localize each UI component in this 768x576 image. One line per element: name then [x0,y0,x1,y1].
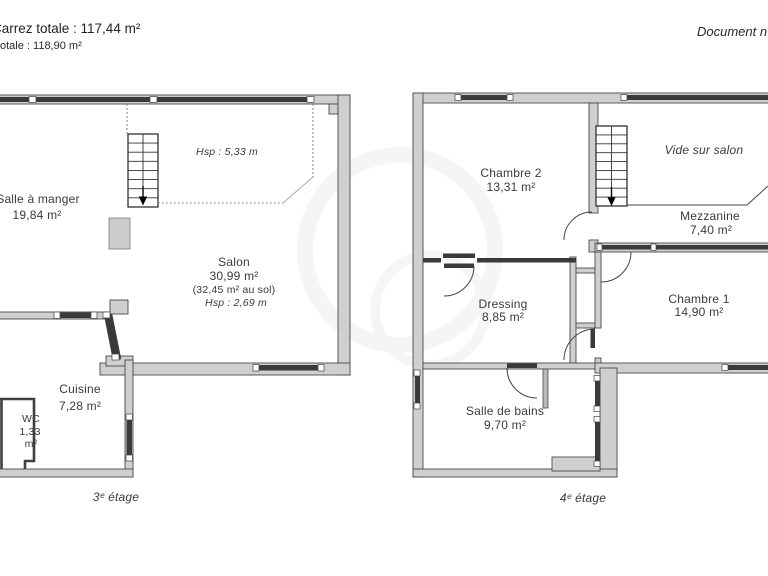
room-label-chambre2: Chambre 2 [401,167,621,180]
room-label-salle-de-bains: Salle de bains [395,405,615,418]
bathroom-stub-wall [543,369,548,408]
surface-carrez-total: Carrez totale : 117,44 m² [0,21,140,36]
slanted-window [104,314,121,360]
hsp-annotation-salon: Hsp : 2,69 m [126,297,346,310]
chambre2-door-swing-icon [564,212,592,240]
room-label-salon: Salon [124,256,344,269]
room-area-wc-unit: m² [0,438,141,451]
surface-total: otale : 118,90 m² [0,40,82,52]
mezzanine-edge-line [627,186,768,205]
room-area-salle-a-manger: 19,84 m² [0,209,147,222]
room-floor-area-salon: (32,45 m² au sol) [124,284,344,297]
room-area-chambre2: 13,31 m² [401,181,621,194]
bathroom-door-swing-icon [507,368,537,398]
column [109,218,130,249]
room-area-dressing: 8,85 m² [393,311,613,324]
room-label-mezzanine: Mezzanine [600,210,768,223]
hsp-annotation-mezzanine: Hsp : 5,33 m [117,146,337,159]
room-label-cuisine: Cuisine [0,383,190,396]
mezzanine-staircase-icon [596,126,627,206]
floorplan-page: Carrez totale : 117,44 m² otale : 118,90… [0,0,768,576]
chambre1-door-leaf [591,329,596,348]
floor3-label: 3ᵉ étage [6,491,226,504]
document-note: Document n [697,24,767,39]
room-area-cuisine: 7,28 m² [0,400,190,413]
chambre1-top-door-swing-icon [601,252,631,282]
chambre1-side-door-swing-icon [564,329,595,360]
room-area-chambre1: 14,90 m² [589,306,768,319]
floor4-label: 4ᵉ étage [473,492,693,505]
vide-sur-salon-annotation: Vide sur salon [594,144,768,157]
room-label-salle-a-manger: Salle à manger [0,193,148,206]
room-area-salle-de-bains: 9,70 m² [395,419,615,432]
room-label-wc: WC [0,413,141,426]
bathroom-door-leaf [507,364,537,369]
room-area-salon: 30,99 m² [124,270,344,283]
room-area-mezzanine: 7,40 m² [601,224,768,237]
